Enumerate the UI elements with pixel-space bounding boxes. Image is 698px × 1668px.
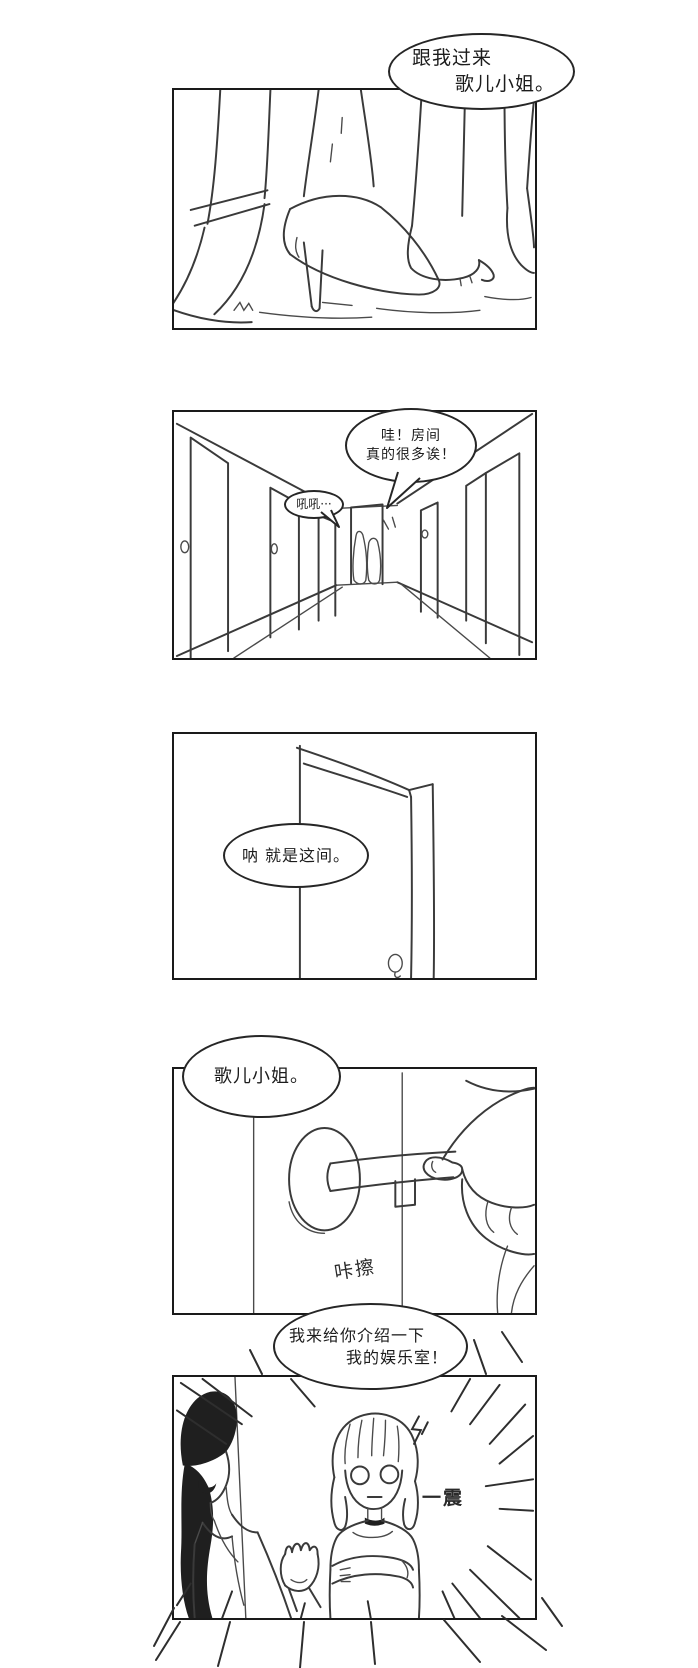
speech-bubble-tail — [315, 508, 345, 532]
bubble-line: 我的娱乐室！ — [289, 1347, 452, 1368]
bubble-line: 歌儿小姐。 — [406, 72, 557, 97]
bubble-line: 歌儿小姐。 — [184, 1065, 339, 1089]
speech-bubble-follow-me: 跟我过来 歌儿小姐。 — [388, 33, 575, 110]
speech-bubble-tail — [380, 468, 425, 513]
panel-1-art-feet-high-heels — [174, 90, 535, 328]
bubble-line: 呐 就是这间。 — [225, 845, 367, 866]
speech-bubble-miss-geer: 歌儿小姐。 — [182, 1035, 341, 1118]
panel-1 — [172, 88, 537, 330]
bubble-line: 哇！房间 — [355, 427, 467, 445]
speech-bubble-introduce-playroom: 我来给你介绍一下 我的娱乐室！ — [273, 1303, 468, 1390]
bubble-line: 真的很多诶！ — [355, 446, 467, 464]
speech-bubble-this-room: 呐 就是这间。 — [223, 823, 369, 888]
bubble-line: 我来给你介绍一下 — [289, 1325, 452, 1346]
bubble-line: 跟我过来 — [406, 46, 557, 71]
